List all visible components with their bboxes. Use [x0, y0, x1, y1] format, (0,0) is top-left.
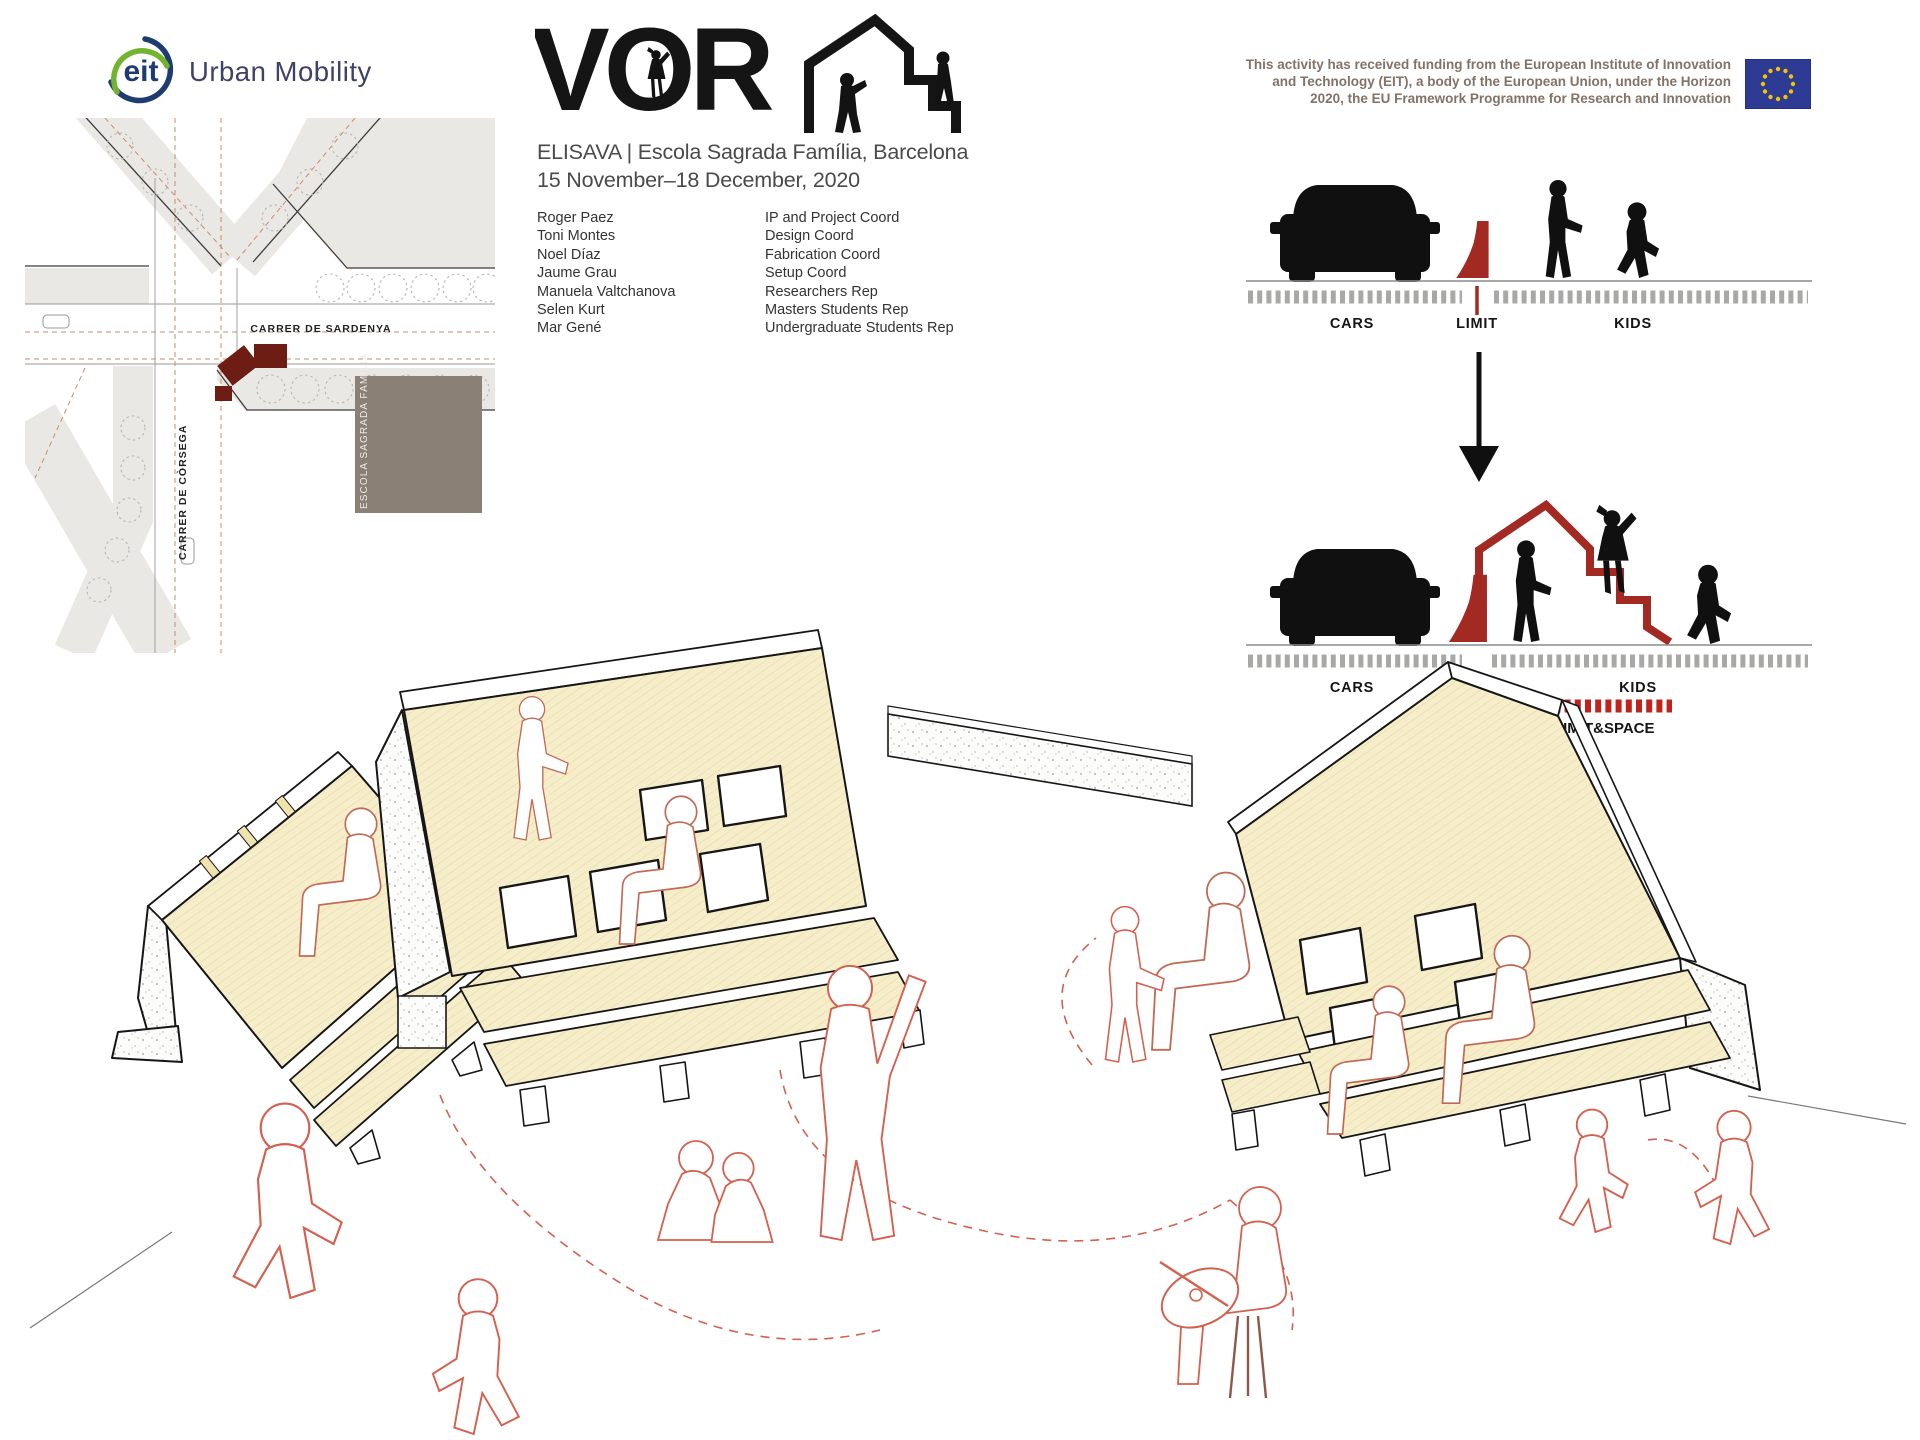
eit-urban-mobility-logo: eit Urban Mobility: [95, 26, 385, 116]
concrete-wall: [888, 706, 1192, 806]
sidewalk-diagonal-left: [95, 118, 231, 258]
vora-logo: VOR: [535, 6, 980, 140]
street-label-vertical: CARRER DE CÒRSEGA: [176, 425, 189, 560]
car-plan-icon: [43, 315, 69, 328]
kid-icon: [1546, 180, 1583, 278]
credit-name: Noel Díaz: [537, 246, 765, 264]
ground-line-right: [1748, 1096, 1906, 1124]
eu-flag-icon: [1745, 59, 1811, 109]
credit-row: Manuela ValtchanovaResearchers Rep: [537, 283, 1007, 301]
eit-wordmark: Urban Mobility: [189, 56, 372, 87]
credit-role: Undergraduate Students Rep: [765, 319, 1007, 337]
credit-row: Mar GenéUndergraduate Students Rep: [537, 319, 1007, 337]
credit-role: Setup Coord: [765, 264, 1007, 282]
house-a-icon: [809, 20, 956, 133]
eit-circle-icon: eit: [111, 39, 170, 100]
credit-role: Design Coord: [765, 227, 1007, 245]
funding-note: This activity has received funding from …: [1235, 56, 1731, 107]
site-plan-map: ESCOLA SAGRADA FAMÍLIA CARRER DE SARDENY…: [25, 118, 495, 653]
credit-name: Manuela Valtchanova: [537, 283, 765, 301]
credit-row: Selen KurtMasters Students Rep: [537, 301, 1007, 319]
credit-name: Mar Gené: [537, 319, 765, 337]
label-cars-before: CARS: [1330, 316, 1374, 332]
credit-role: Researchers Rep: [765, 283, 1007, 301]
sidewalk-left-upper: [25, 268, 149, 304]
credit-role: IP and Project Coord: [765, 209, 1007, 227]
dates-line: 15 November–18 December, 2020: [537, 168, 977, 193]
block-top-right: [273, 118, 495, 268]
poster-canvas: eit Urban Mobility: [0, 0, 1920, 1440]
school-building-block: [355, 376, 482, 513]
axonometric-illustration: [0, 610, 1920, 1440]
credit-role: Masters Students Rep: [765, 301, 1007, 319]
credit-row: Noel DíazFabrication Coord: [537, 246, 1007, 264]
label-kids-before: KIDS: [1614, 316, 1652, 332]
credit-name: Roger Paez: [537, 209, 765, 227]
limit-bollard-icon: [1456, 221, 1488, 278]
figure-crouching: [711, 1153, 772, 1242]
kid-icon: [1617, 202, 1659, 278]
credit-name: Selen Kurt: [537, 301, 765, 319]
figure-kid-running: [1695, 1111, 1769, 1244]
credit-role: Fabrication Coord: [765, 246, 1007, 264]
figure-guitarist: [1152, 1187, 1286, 1398]
figure-sitting: [1152, 873, 1249, 1050]
venue-line: ELISAVA | Escola Sagrada Família, Barcel…: [537, 140, 977, 165]
credit-name: Jaume Grau: [537, 264, 765, 282]
credit-row: Roger PaezIP and Project Coord: [537, 209, 1007, 227]
figure-kid-running: [1560, 1110, 1628, 1232]
figure-kid-running: [433, 1279, 519, 1434]
ground-line-left: [30, 1232, 172, 1328]
school-building-label: ESCOLA SAGRADA FAMÍLIA: [357, 353, 370, 509]
credit-name: Toni Montes: [537, 227, 765, 245]
credits-list: Roger PaezIP and Project Coord Toni Mont…: [537, 209, 1007, 338]
eit-circle-text: eit: [123, 55, 158, 88]
credit-row: Toni MontesDesign Coord: [537, 227, 1007, 245]
label-limit: LIMIT: [1456, 316, 1498, 332]
diagram-before: CARS LIMIT KIDS: [1246, 180, 1812, 332]
credit-row: Jaume GrauSetup Coord: [537, 264, 1007, 282]
down-arrow-icon: [1459, 352, 1499, 482]
street-label-horizontal: CARRER DE SARDENYA: [250, 323, 391, 335]
pavilion-right: [1210, 662, 1760, 1176]
car-icon: [1270, 185, 1440, 282]
